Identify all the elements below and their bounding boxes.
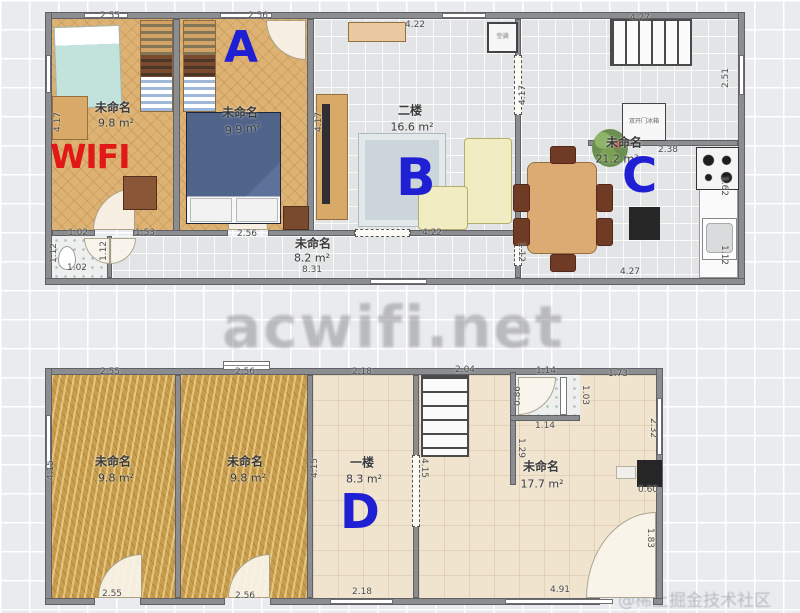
dining-chair: [596, 218, 613, 246]
room-name: 未命名: [222, 104, 258, 121]
side-table: [348, 22, 406, 42]
dim-label: 1.02: [68, 228, 88, 238]
upper-stairs: [610, 19, 692, 66]
dim-label: 1.14: [536, 366, 556, 376]
dim-label: 2.51: [721, 68, 731, 88]
desk-chair-unit: [140, 20, 173, 112]
dim-label: 1.62: [719, 176, 729, 196]
upper-window-left: [46, 55, 51, 93]
lower-wall-bottom-2: [140, 598, 225, 605]
dim-label: 4.27: [630, 13, 650, 23]
marker-d: D: [340, 488, 380, 536]
shelf: [616, 466, 636, 479]
upper-window-living: [442, 13, 486, 18]
dim-label: 2.56: [237, 229, 257, 239]
dim-label: 2.55: [100, 367, 120, 377]
upper-wall-a-living: [307, 19, 314, 235]
dim-label: 2.18: [352, 367, 372, 377]
room-area: 9.8 m²: [98, 472, 134, 485]
dim-label: 1.14: [535, 421, 555, 431]
upper-window-corridor: [370, 279, 427, 284]
lower-stairs: [421, 375, 469, 457]
stove: [696, 147, 739, 190]
dim-label: 4.15: [310, 458, 320, 478]
bed-pillow: [236, 198, 278, 222]
dim-label: 2.18: [352, 587, 372, 597]
upper-wall-bedrooms-divider: [173, 19, 180, 235]
dim-label: 8.31: [302, 265, 322, 275]
upper-wall-right: [738, 12, 745, 285]
appliance-block: [637, 460, 662, 487]
dim-label: 4.15: [46, 460, 56, 480]
room-area: 16.6 m²: [390, 121, 433, 134]
dim-label: 0.86: [513, 386, 523, 406]
dim-label: 1.03: [580, 385, 590, 405]
lower-window-main-bottom: [505, 599, 613, 604]
dim-label: 1.12: [49, 243, 59, 263]
upper-opening-living-corridor: [355, 229, 410, 237]
dim-label: 2.38: [658, 145, 678, 155]
kitchen-island-block: [629, 207, 660, 240]
dim-label: 1.73: [608, 369, 628, 379]
watermark-acwifi: acwifi.net: [222, 293, 564, 361]
dim-label: 4.91: [550, 585, 570, 595]
dim-label: 4.17: [518, 85, 528, 105]
router-table: [123, 176, 157, 210]
lower-wall-bedrooms-divider: [175, 375, 181, 598]
marker-a: A: [224, 26, 258, 70]
dim-label: 2.04: [455, 365, 475, 375]
dim-label: 2.55: [102, 589, 122, 599]
desk-chair-unit: [183, 20, 216, 112]
lower-wall-left: [45, 368, 52, 605]
dim-label: 4.17: [314, 112, 324, 132]
room-name: 未命名: [95, 99, 131, 116]
dim-label: 2.56: [235, 591, 255, 601]
floorplan-canvas: WIFI 空调 双开门冰箱 未命名 9.8 m²: [0, 0, 800, 613]
marker-b: B: [396, 152, 436, 204]
dim-label: 4.15: [419, 458, 429, 478]
dim-label: 4.22: [422, 228, 442, 238]
dim-label: 1.53: [135, 228, 155, 238]
dim-label: 1.02: [67, 263, 87, 273]
dim-label: 1.12: [99, 241, 109, 261]
dim-label: 4.22: [405, 20, 425, 30]
dining-chair: [550, 254, 576, 272]
room-area: 8.2 m²: [294, 252, 330, 265]
bed-pillow: [190, 198, 232, 222]
room-name: 一楼: [350, 454, 374, 471]
fridge-label: 双开门冰箱: [623, 118, 665, 125]
shower-door-panel: [560, 377, 567, 415]
dim-label: 1.83: [645, 528, 655, 548]
dining-chair: [513, 184, 530, 212]
room-name: 未命名: [295, 235, 331, 252]
dim-label: 2.56: [248, 11, 268, 21]
dim-label: 2.56: [235, 367, 255, 377]
dim-label: 1.12: [516, 242, 526, 262]
dim-label: 4.27: [620, 267, 640, 277]
dim-label: 1.29: [516, 438, 526, 458]
nightstand: [283, 206, 309, 230]
sofa-main: [464, 138, 512, 224]
dining-chair: [596, 184, 613, 212]
wifi-label: WIFI: [50, 137, 130, 176]
dim-label: 1.12: [719, 245, 729, 265]
ac-label: 空调: [489, 33, 516, 40]
dining-table: [527, 162, 597, 254]
lower-window-d-bottom: [330, 599, 393, 604]
room-name: 未命名: [95, 453, 131, 470]
room-name: 二楼: [398, 102, 422, 119]
dining-chair: [550, 146, 576, 164]
dim-label: 0.60: [638, 485, 658, 495]
dim-label: 2.55: [100, 11, 120, 21]
room-name: 未命名: [523, 458, 559, 475]
upper-window-kitchen-right: [739, 55, 744, 95]
marker-c: C: [622, 152, 657, 200]
room-area: 9.8 m²: [98, 117, 134, 130]
lower-wall-bottom-1: [45, 598, 95, 605]
lower-wall-bottom-4: [653, 598, 663, 605]
room-area: 9.8 m²: [230, 472, 266, 485]
dim-label: 4.17: [53, 112, 63, 132]
dim-label: 2.32: [648, 418, 658, 438]
lower-wall-bed2-d: [307, 375, 313, 598]
room-name: 未命名: [227, 453, 263, 470]
room-area: 17.7 m²: [520, 478, 563, 491]
